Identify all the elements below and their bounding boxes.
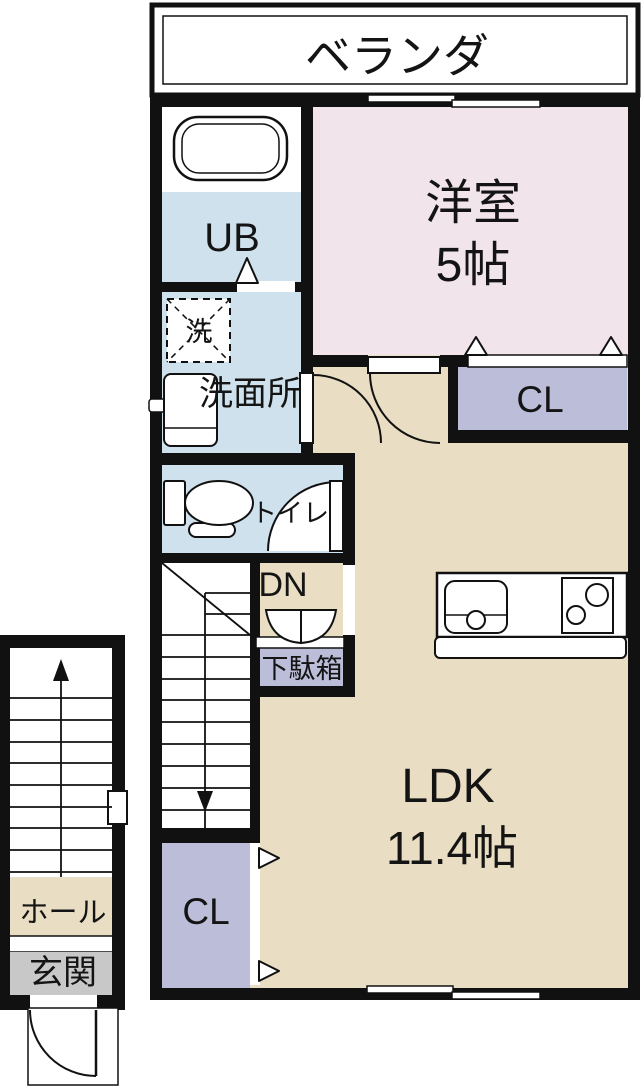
- wall-toilet-stairs: [150, 553, 355, 563]
- dn-door-opening: [343, 565, 355, 635]
- unit-bath-label: UB: [204, 216, 260, 260]
- ldk-size: 11.4帖: [386, 822, 518, 874]
- door-leaf: [368, 357, 440, 373]
- wall-closet-upper-bottom: [448, 430, 628, 443]
- sink-icon: [445, 581, 507, 633]
- western-room-size: 5帖: [436, 239, 511, 292]
- western-room-label: 洋室: [425, 177, 521, 230]
- floor-plan-drawing: ベランダ: [0, 0, 644, 1088]
- entrance-label: 玄関: [29, 954, 97, 992]
- stairs-down-label: DN: [258, 566, 307, 604]
- door-leaf: [330, 481, 343, 551]
- window-sash: [368, 95, 455, 102]
- counter-front: [435, 637, 626, 658]
- closet-lower-label: CL: [182, 891, 229, 932]
- wall-stairs-closet: [150, 828, 260, 843]
- door-leaf: [300, 373, 313, 443]
- ldk-label: LDK: [401, 760, 494, 813]
- window-sash: [367, 986, 453, 993]
- floor-plan-page: ベランダ: [0, 0, 644, 1088]
- wall-washroom-toilet: [150, 453, 355, 465]
- closet-upper-label: CL: [516, 379, 563, 420]
- washer-label: 洗: [186, 317, 213, 347]
- door-opening: [468, 355, 627, 367]
- window-sash: [452, 992, 540, 999]
- entrance-door: [28, 995, 118, 1085]
- stove-icon: [562, 578, 613, 633]
- washroom-label: 洗面所: [199, 375, 301, 413]
- wall-shoe-cabinet-left: [250, 648, 258, 686]
- bathtub-icon: [174, 117, 287, 180]
- kitchen-counter: [435, 573, 627, 658]
- wall-western-room-bottom-left: [313, 355, 368, 367]
- wall-toilet-right: [343, 455, 355, 565]
- window-sash: [452, 100, 540, 107]
- toilet-label: トイレ: [251, 498, 329, 528]
- entrance-step: [10, 936, 112, 952]
- wall-stairs-right: [250, 563, 260, 843]
- western-room-floor: [313, 107, 628, 355]
- shoe-cabinet-label: 下駄箱: [262, 654, 343, 684]
- wall-closet-upper-left: [448, 355, 458, 443]
- hall-label: ホール: [19, 897, 106, 929]
- balcony-label: ベランダ: [305, 30, 489, 82]
- wall-shoe-cabinet-bottom: [250, 686, 355, 697]
